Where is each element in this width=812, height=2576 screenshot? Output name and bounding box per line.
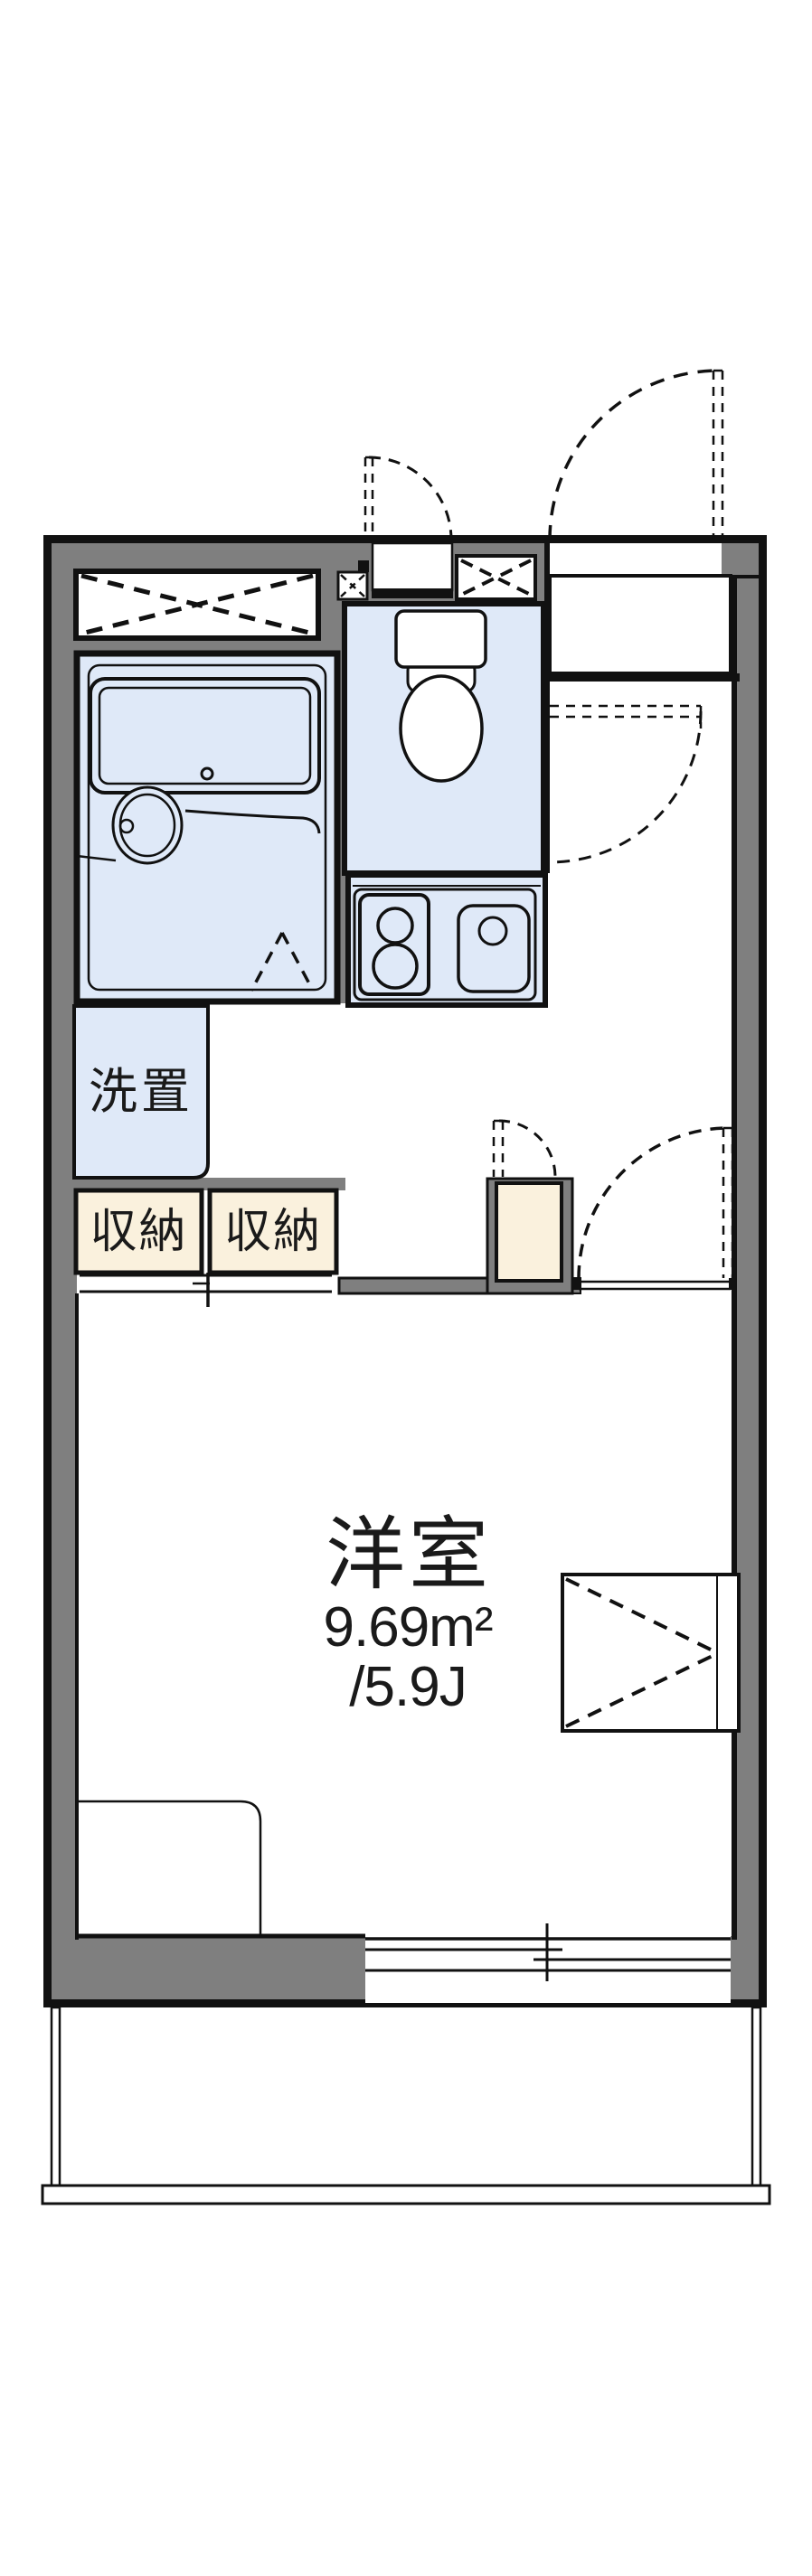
storage-right-label: 収納: [210, 1208, 336, 1255]
genkan-step-edge: [544, 673, 740, 682]
door-arc: [369, 457, 451, 540]
toilet-room: [345, 604, 543, 873]
door-arc: [550, 711, 701, 862]
meter-box-sill: [372, 588, 453, 598]
door-arc: [550, 371, 719, 540]
balcony: [42, 2007, 770, 2204]
furniture-outline: [77, 1801, 260, 1936]
door-leaf: [550, 706, 701, 729]
threshold-stub: [573, 1278, 581, 1290]
balcony-side-right: [752, 2007, 760, 2186]
main-room-label: 洋室: [228, 1515, 590, 1594]
closet-box: [562, 1575, 739, 1731]
main-room-area-tatami: /5.9J: [227, 1659, 589, 1716]
balcony-side-left: [52, 2007, 60, 2186]
meterbox-door-swing: [365, 457, 451, 540]
sliding-window: [365, 1923, 731, 2003]
kitchen: [348, 875, 545, 1005]
balcony-railing: [42, 2186, 770, 2204]
wash-basin: [113, 787, 182, 863]
closet-symbol: [562, 1575, 739, 1731]
utility-closet: [487, 1121, 572, 1293]
storage-left-label: 収納: [76, 1208, 202, 1255]
bathtub: [90, 679, 319, 793]
toilet-door-swing: [550, 706, 701, 862]
wall-notch: [358, 560, 369, 572]
wall-room-boundary: [339, 1278, 497, 1293]
toilet-tank: [396, 611, 486, 667]
floorplan-canvas: 洗置 収納 収納 洋室 9.69m² /5.9J: [0, 0, 812, 2576]
closet-door-arc: [499, 1121, 555, 1177]
overhead-unit-symbol: [76, 571, 318, 638]
utility-closet-box: [496, 1183, 562, 1281]
room-door: [573, 1128, 736, 1290]
door-arc: [579, 1128, 729, 1278]
door-leaf: [365, 457, 373, 539]
door-leaf: [713, 371, 722, 539]
entrance-door-swing: [550, 371, 722, 540]
washer-space-label: 洗置: [74, 1067, 208, 1116]
floorplan-drawing: [0, 0, 812, 2576]
closet-door-leaf: [494, 1121, 503, 1177]
genkan-floor: [550, 576, 731, 673]
main-room-area-sqm: 9.69m²: [227, 1600, 589, 1656]
threshold-stub: [729, 1278, 736, 1290]
wall-bottom-left: [45, 1936, 365, 2007]
bathroom: [77, 653, 337, 1001]
door-leaf: [723, 1128, 732, 1278]
toilet-bowl: [401, 676, 482, 781]
meter-box: [373, 543, 452, 590]
